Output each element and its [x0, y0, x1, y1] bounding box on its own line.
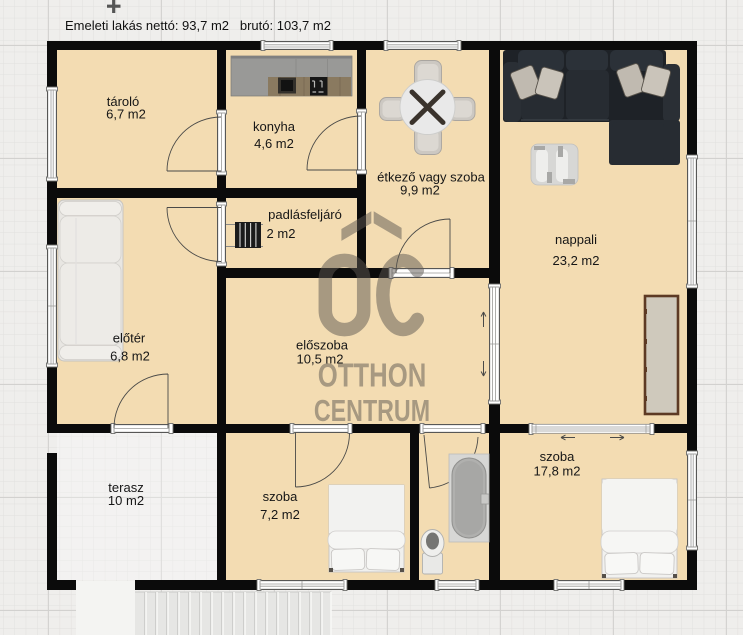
svg-text:17,8 m2: 17,8 m2	[534, 464, 581, 479]
svg-text:9,9 m2: 9,9 m2	[400, 183, 440, 198]
svg-text:Emeleti lakás nettó: 93,7 m2: Emeleti lakás nettó: 93,7 m2 brutó: 103,…	[65, 18, 331, 33]
svg-text:padlásfeljáró: padlásfeljáró	[268, 207, 342, 222]
svg-text:6,8 m2: 6,8 m2	[110, 349, 150, 364]
svg-text:6,7 m2: 6,7 m2	[106, 107, 146, 122]
svg-text:10,5 m2: 10,5 m2	[297, 352, 344, 367]
svg-text:nappali: nappali	[555, 232, 597, 247]
svg-text:CENTRUM: CENTRUM	[314, 393, 430, 428]
svg-text:10 m2: 10 m2	[108, 493, 144, 508]
svg-text:4,6 m2: 4,6 m2	[254, 136, 294, 151]
svg-text:2 m2: 2 m2	[267, 226, 296, 241]
svg-text:konyha: konyha	[253, 119, 296, 134]
svg-text:23,2 m2: 23,2 m2	[553, 253, 600, 268]
svg-text:előszoba: előszoba	[296, 338, 349, 353]
svg-text:szoba: szoba	[263, 489, 298, 504]
svg-text:előtér: előtér	[113, 331, 146, 346]
svg-text:7,2 m2: 7,2 m2	[260, 507, 300, 522]
svg-text:szoba: szoba	[540, 449, 575, 464]
